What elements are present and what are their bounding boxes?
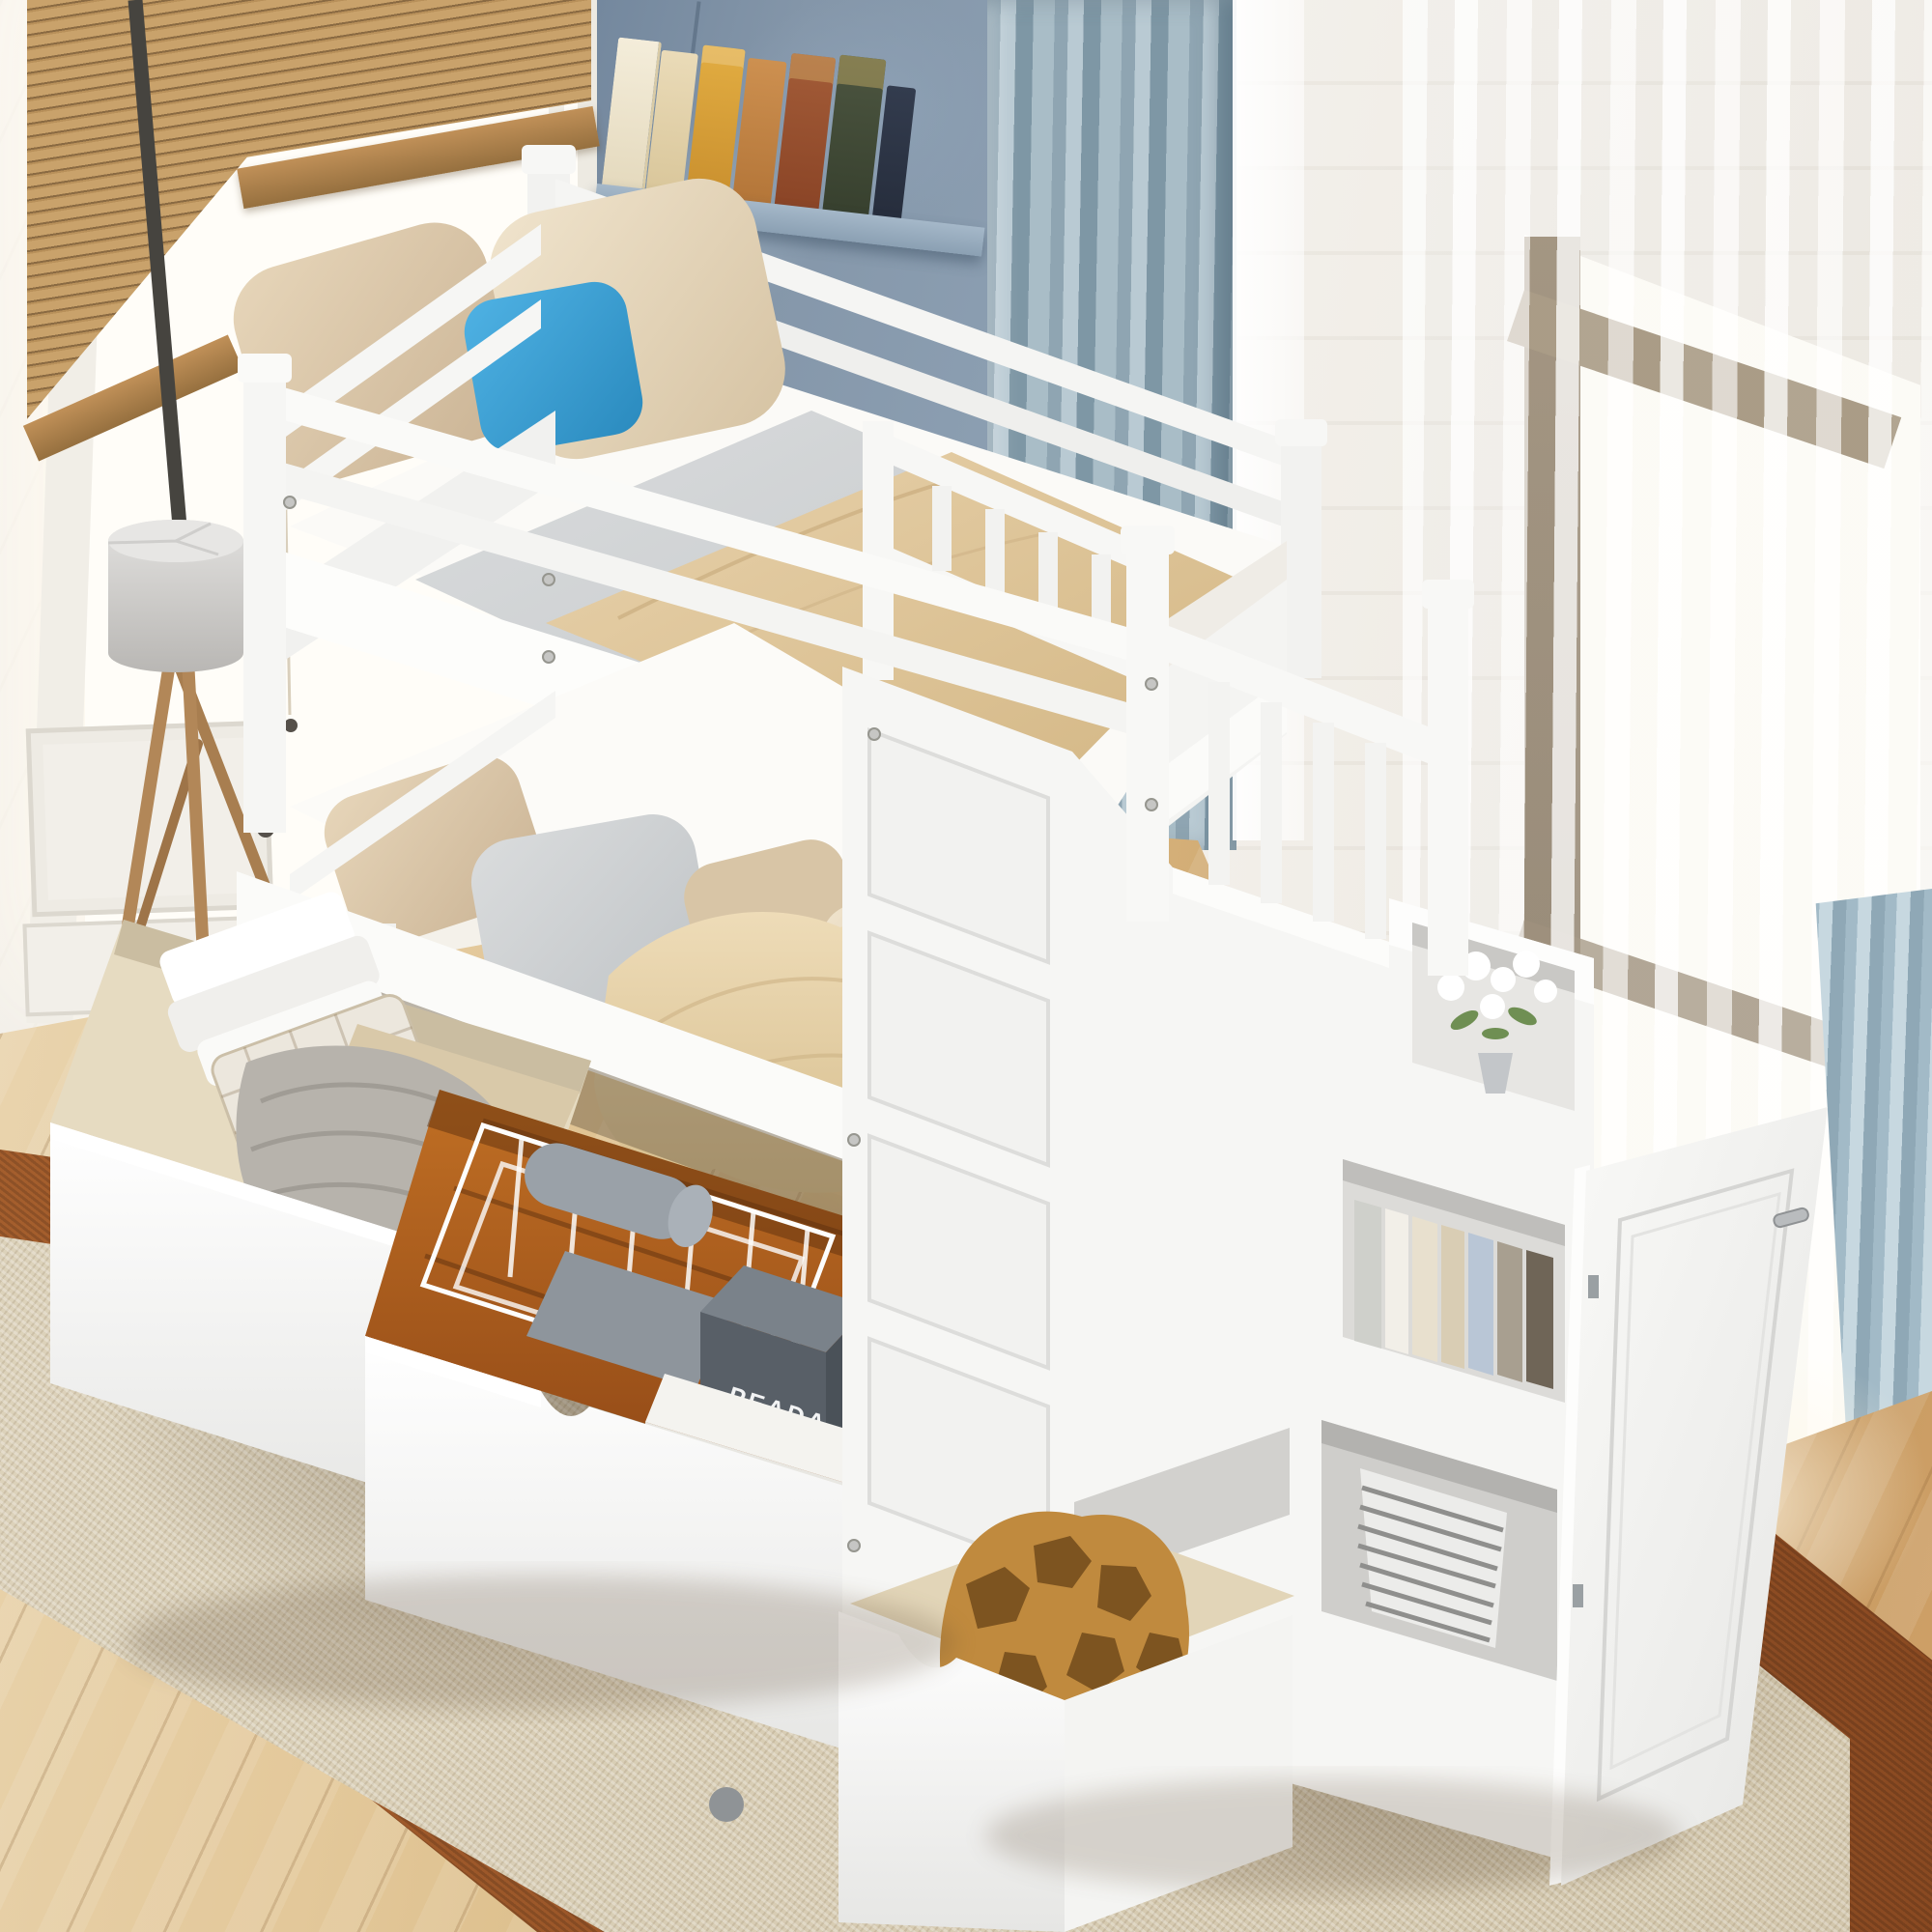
storage-staircase [838,526,1594,1932]
bedroom-scene: PEADA ROBERT LONGO [0,0,1932,1932]
caster-wheel [709,1787,744,1822]
bunk-bed-illustration: PEADA ROBERT LONGO [0,0,1932,1932]
door-hinge-lower [1573,1584,1583,1607]
door-hinge [1588,1275,1599,1298]
open-cabinet-door [1549,1107,1828,1886]
